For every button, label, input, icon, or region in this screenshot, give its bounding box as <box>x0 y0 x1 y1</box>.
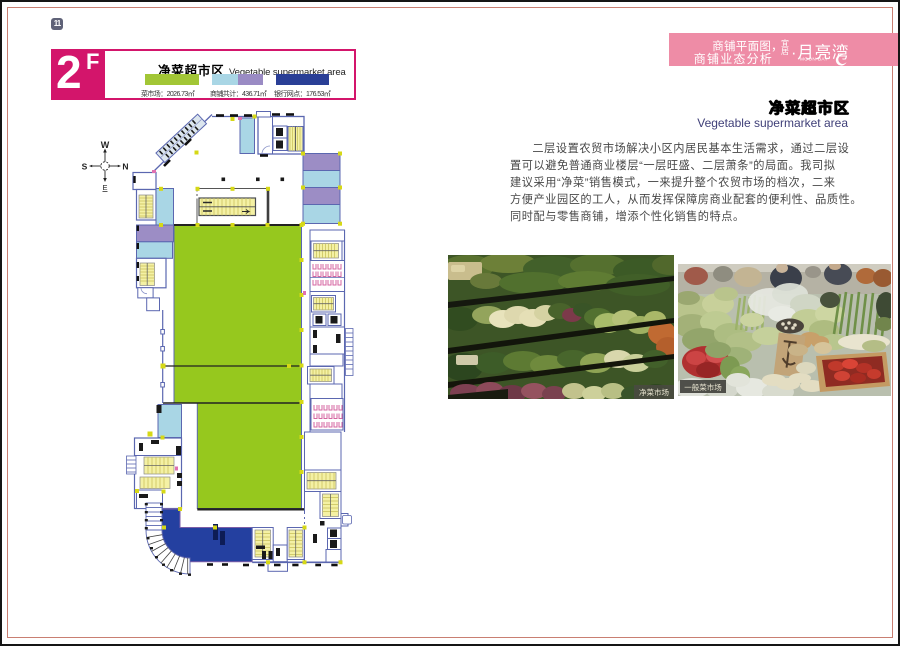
svg-text:W: W <box>101 140 110 150</box>
svg-text:E: E <box>102 183 107 192</box>
svg-text:S: S <box>82 162 88 172</box>
svg-text:N: N <box>122 162 128 172</box>
